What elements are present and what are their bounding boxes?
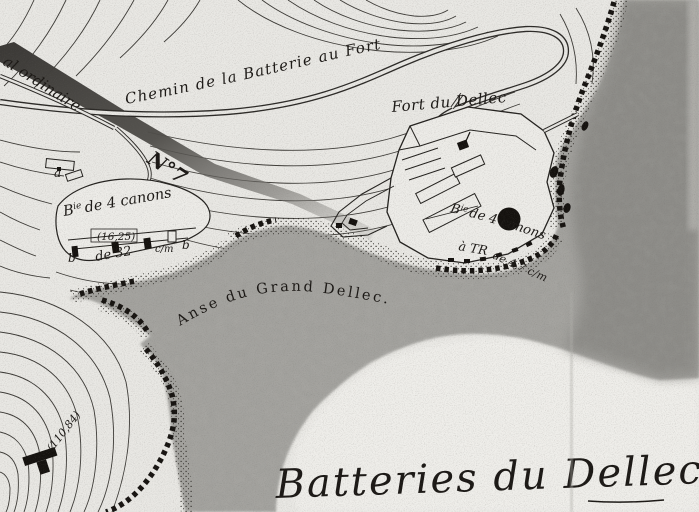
left-battery-height: (16,25)	[97, 231, 135, 243]
left-battery-a: a	[54, 166, 61, 180]
left-battery-b-left: b	[68, 251, 76, 265]
paper-fold-line	[570, 292, 573, 512]
map-page: Chemin de la Batterie au Fort al ordinai…	[0, 0, 699, 512]
left-battery-b-right: b	[182, 238, 190, 252]
left-battery-cm: c/m	[155, 244, 173, 255]
scan-edge-strip	[688, 0, 699, 230]
map-canvas: Chemin de la Batterie au Fort al ordinai…	[0, 0, 699, 512]
